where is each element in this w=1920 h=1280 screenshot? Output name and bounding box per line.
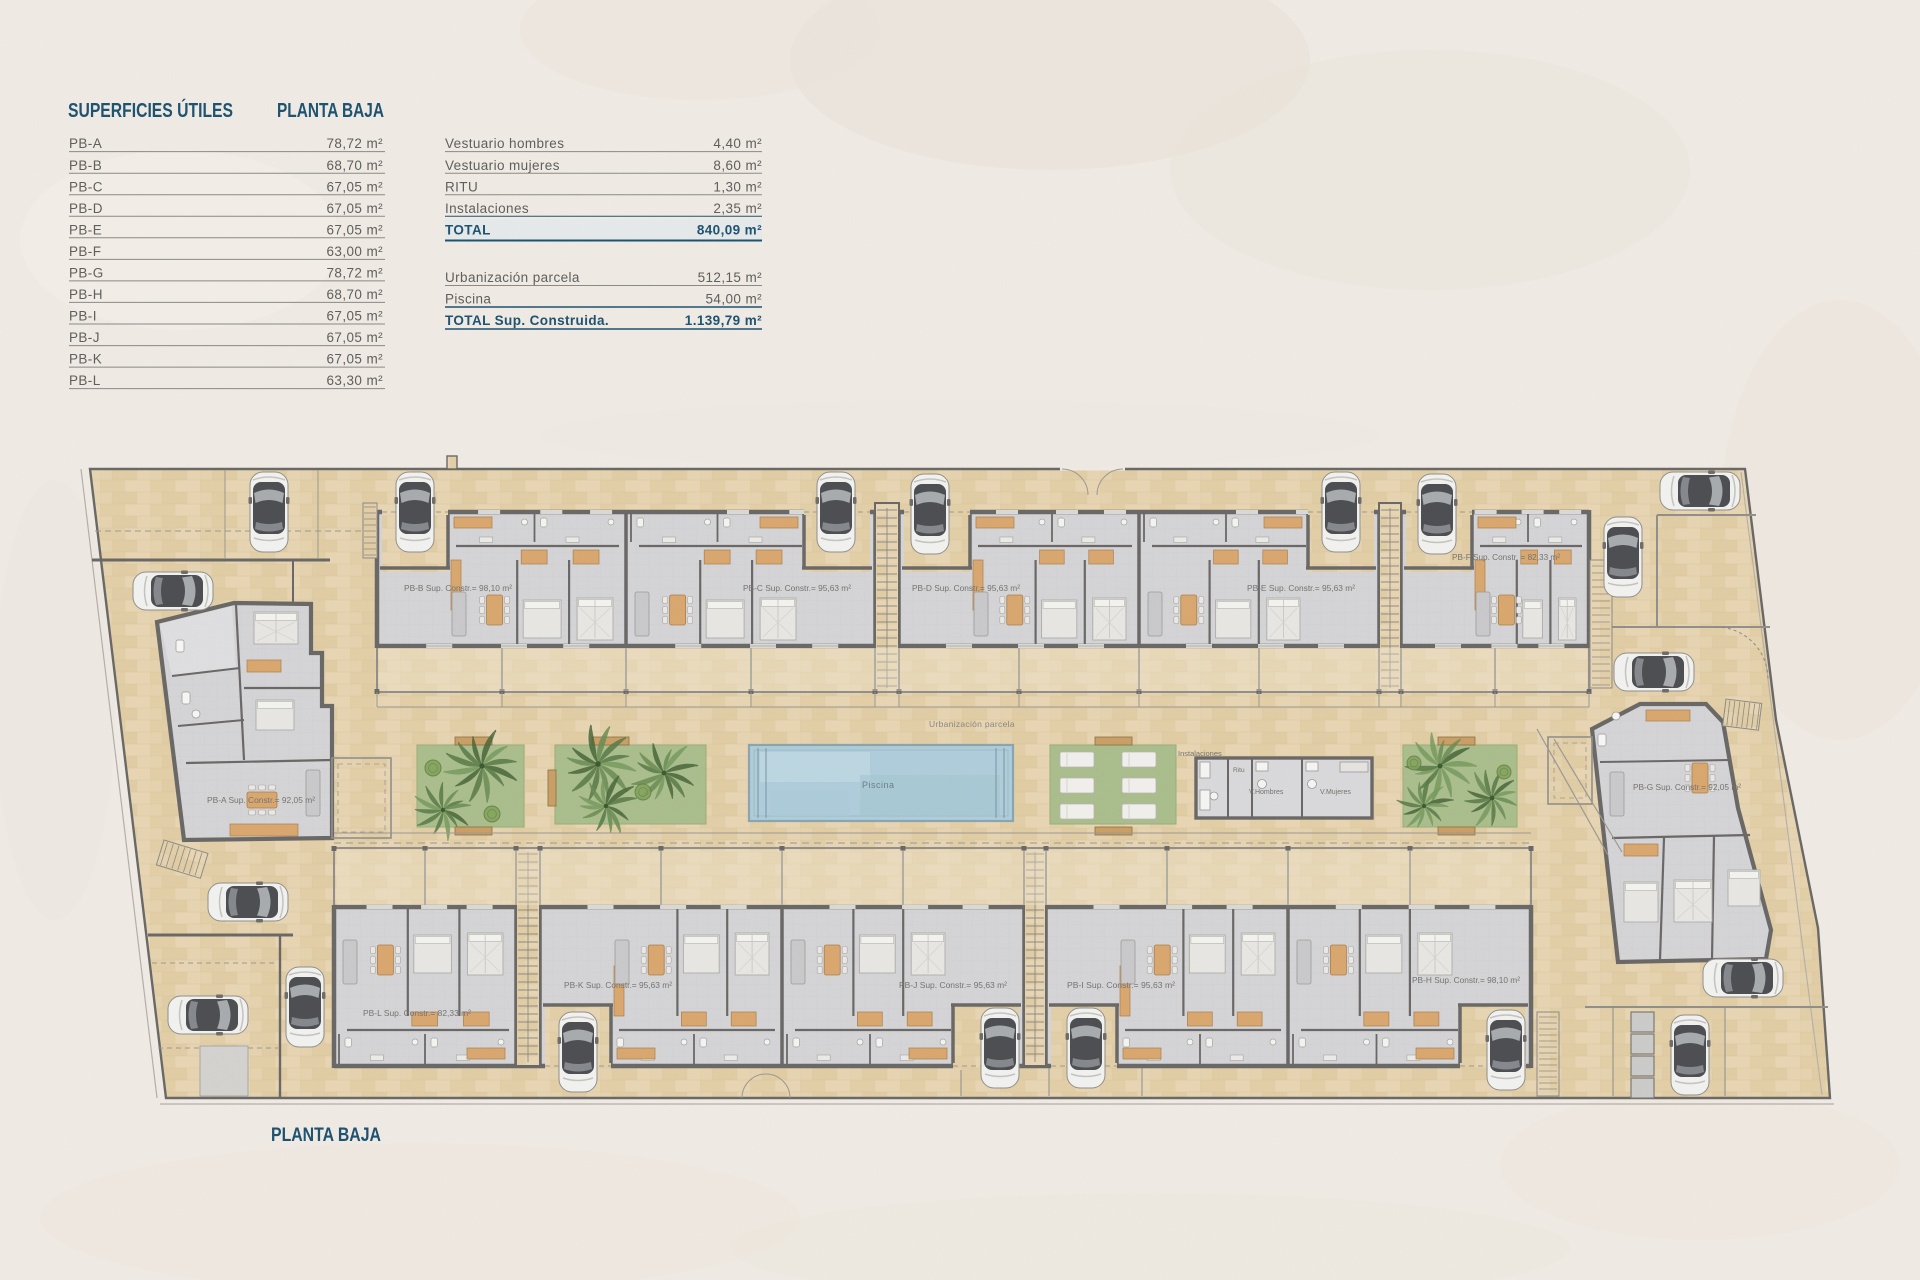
svg-text:PLANTA BAJA: PLANTA BAJA	[271, 1125, 381, 1146]
